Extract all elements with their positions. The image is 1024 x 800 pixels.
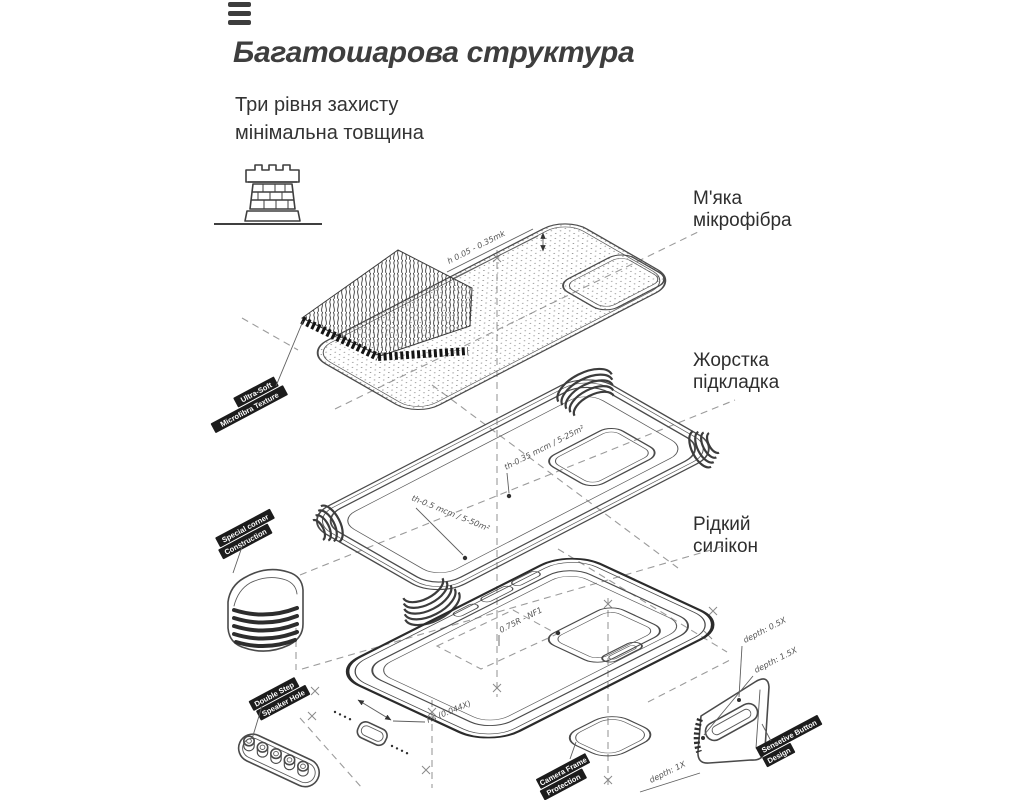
annotation-lining-thickness-side: th-0.5 mcm / 5-50m² — [410, 494, 491, 534]
speaker-holes-row — [334, 711, 408, 755]
annotation-button-depth-1: depth: 0.5X — [742, 615, 788, 644]
speaker-holes-detail — [234, 730, 324, 792]
exploded-case-diagram: h 0.05 - 0.35mk — [0, 0, 1024, 800]
shock-rib-left — [309, 502, 348, 548]
shock-rib-top — [551, 361, 620, 419]
callout-double-step: Double Step Speaker Hole — [248, 674, 310, 722]
side-button — [599, 641, 646, 664]
annotation-case-top-group: 0.75R - NF1 — [437, 605, 560, 669]
annotation-camera-depth: depth: 1X — [648, 759, 688, 784]
corner-bumper-detail — [228, 570, 303, 652]
annotation-lining-side-group: th-0.5 mcm / 5-50m² — [410, 494, 491, 561]
annotation-case-radius-top: 0.75R - NF1 — [498, 605, 544, 634]
shock-rib-right — [684, 425, 723, 471]
annotation-camera-depth-group: depth: 1X — [640, 759, 700, 792]
annotation-lining-top-group: th-0.35 mcm / 5-25m² — [503, 423, 587, 498]
layer-silicone-case: 0.75R - NF1 Rs (0.044X) — [330, 550, 730, 754]
annotation-button-depth-2: depth: 1.5X — [753, 645, 799, 674]
tower-icon — [214, 165, 322, 224]
usb-c-cutout — [355, 720, 389, 748]
annotation-lining-thickness-top: th-0.35 mcm / 5-25m² — [503, 423, 587, 471]
callout-ultra-soft: Ultra-Soft Microfibra Texture — [205, 374, 288, 433]
page: Багатошарова структура Три рівня захисту… — [0, 0, 1024, 800]
callout-special-corner: Special corner Construction — [212, 509, 280, 560]
callout-camera-frame: Camera Frame Protection — [534, 753, 596, 800]
